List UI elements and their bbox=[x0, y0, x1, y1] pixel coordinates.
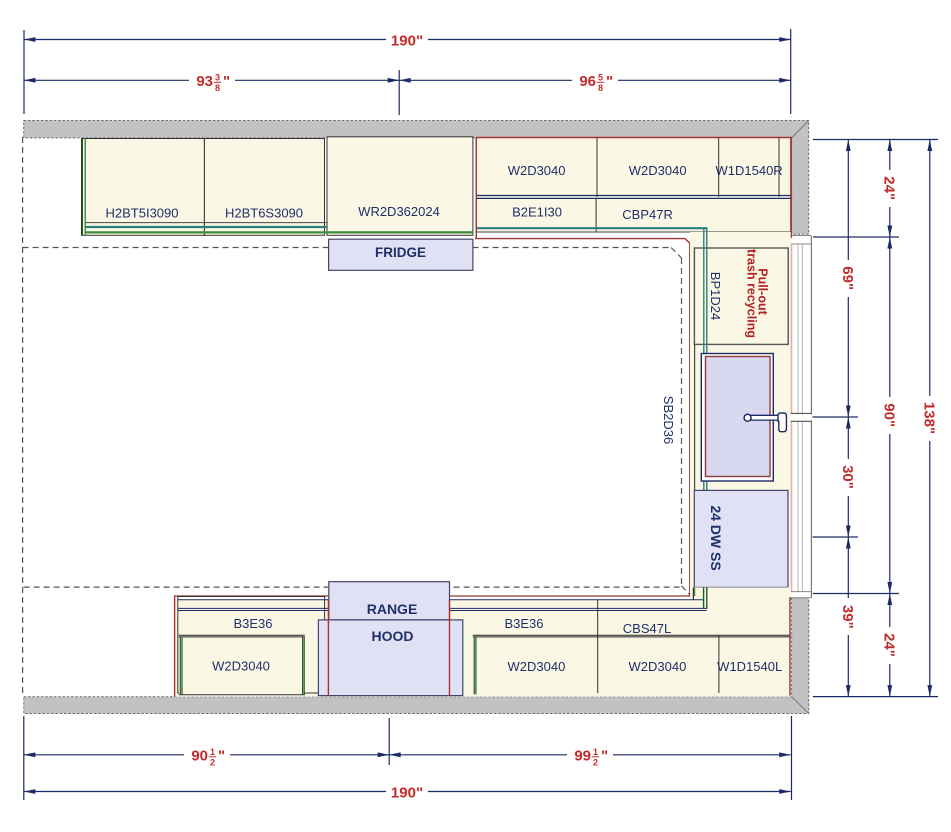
svg-text:SB2D36: SB2D36 bbox=[661, 396, 676, 444]
svg-text:B3E36: B3E36 bbox=[504, 616, 543, 631]
svg-text:93: 93 bbox=[196, 73, 213, 90]
svg-text:W2D3040: W2D3040 bbox=[628, 659, 686, 674]
svg-text:W2D3040: W2D3040 bbox=[507, 659, 565, 674]
svg-text:": " bbox=[223, 73, 230, 90]
svg-text:2: 2 bbox=[593, 758, 598, 768]
svg-text:H2BT5I3090: H2BT5I3090 bbox=[106, 206, 179, 221]
svg-text:H2BT6S3090: H2BT6S3090 bbox=[225, 206, 303, 221]
svg-text:trash recycling: trash recycling bbox=[745, 249, 759, 338]
svg-text:HOOD: HOOD bbox=[372, 628, 414, 644]
svg-text:": " bbox=[606, 73, 613, 90]
svg-text:B3E36: B3E36 bbox=[233, 616, 272, 631]
svg-text:30": 30" bbox=[839, 465, 856, 489]
svg-text:2: 2 bbox=[210, 758, 215, 768]
svg-text:24": 24" bbox=[881, 176, 898, 200]
svg-text:W2D3040: W2D3040 bbox=[629, 163, 687, 178]
svg-text:CBP47R: CBP47R bbox=[622, 207, 673, 222]
svg-text:FRIDGE: FRIDGE bbox=[375, 245, 426, 260]
svg-text:39": 39" bbox=[839, 605, 856, 629]
svg-text:W1D1540L: W1D1540L bbox=[717, 659, 782, 674]
svg-text:24": 24" bbox=[881, 633, 898, 657]
svg-text:BP1D24: BP1D24 bbox=[708, 272, 723, 320]
svg-text:B2E1I30: B2E1I30 bbox=[512, 205, 562, 220]
svg-text:8: 8 bbox=[598, 83, 603, 93]
svg-text:W2D3040: W2D3040 bbox=[212, 659, 270, 674]
svg-text:": " bbox=[218, 748, 225, 765]
svg-text:138": 138" bbox=[921, 402, 938, 434]
svg-text:90": 90" bbox=[881, 403, 898, 427]
svg-text:W1D1540R: W1D1540R bbox=[715, 163, 782, 178]
svg-text:W2D3040: W2D3040 bbox=[508, 163, 566, 178]
svg-text:": " bbox=[601, 748, 608, 765]
svg-text:90: 90 bbox=[191, 748, 208, 765]
svg-text:1: 1 bbox=[210, 747, 215, 757]
svg-text:24 DW SS: 24 DW SS bbox=[708, 505, 724, 570]
svg-text:1: 1 bbox=[593, 747, 598, 757]
svg-text:69": 69" bbox=[839, 266, 856, 290]
svg-text:99: 99 bbox=[574, 748, 591, 765]
svg-text:190": 190" bbox=[391, 32, 423, 49]
svg-text:5: 5 bbox=[598, 73, 603, 83]
svg-text:190": 190" bbox=[391, 784, 423, 801]
svg-text:8: 8 bbox=[215, 83, 220, 93]
svg-text:RANGE: RANGE bbox=[367, 601, 418, 617]
svg-text:CBS47L: CBS47L bbox=[623, 621, 671, 636]
svg-text:3: 3 bbox=[215, 73, 220, 83]
svg-text:WR2D362024: WR2D362024 bbox=[358, 204, 440, 219]
svg-text:96: 96 bbox=[579, 73, 596, 90]
